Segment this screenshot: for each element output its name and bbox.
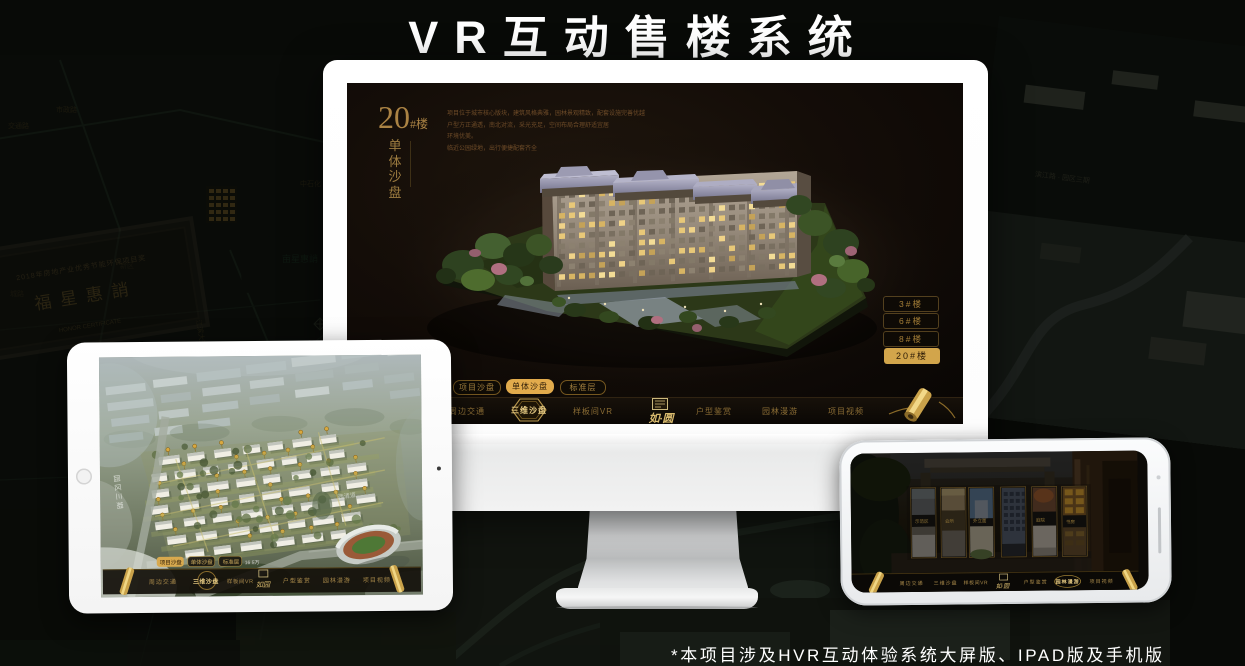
svg-text:标准层: 标准层 — [223, 558, 240, 566]
svg-text:项目沙盘: 项目沙盘 — [160, 558, 183, 566]
svg-text:亩星惠誚: 亩星惠誚 — [282, 253, 318, 264]
svg-text:中石化: 中石化 — [300, 179, 321, 188]
svg-text:周边交通: 周边交通 — [900, 580, 924, 587]
svg-text:三维沙盘: 三维沙盘 — [193, 577, 219, 585]
svg-text:园林漫游: 园林漫游 — [1056, 578, 1080, 585]
svg-text:16.5万: 16.5万 — [245, 560, 260, 566]
svg-text:周边交通: 周边交通 — [149, 578, 177, 586]
svg-text:园林漫游: 园林漫游 — [323, 576, 351, 584]
svg-text:户型鉴赏: 户型鉴赏 — [1024, 579, 1048, 586]
svg-text:如园: 如园 — [256, 581, 271, 589]
svg-text:项目视频: 项目视频 — [1090, 578, 1114, 585]
svg-text:单体沙盘: 单体沙盘 — [191, 558, 214, 566]
svg-text:三维沙盘: 三维沙盘 — [934, 580, 958, 587]
svg-text:户型鉴赏: 户型鉴赏 — [283, 577, 311, 585]
svg-text:市政路: 市政路 — [56, 105, 77, 114]
svg-text:样板间VR: 样板间VR — [964, 579, 989, 586]
svg-text:项目视频: 项目视频 — [363, 576, 391, 584]
svg-text:样板间VR: 样板间VR — [227, 577, 254, 585]
svg-text:交通路: 交通路 — [8, 121, 29, 130]
svg-text:如·圆: 如·圆 — [996, 582, 1011, 590]
